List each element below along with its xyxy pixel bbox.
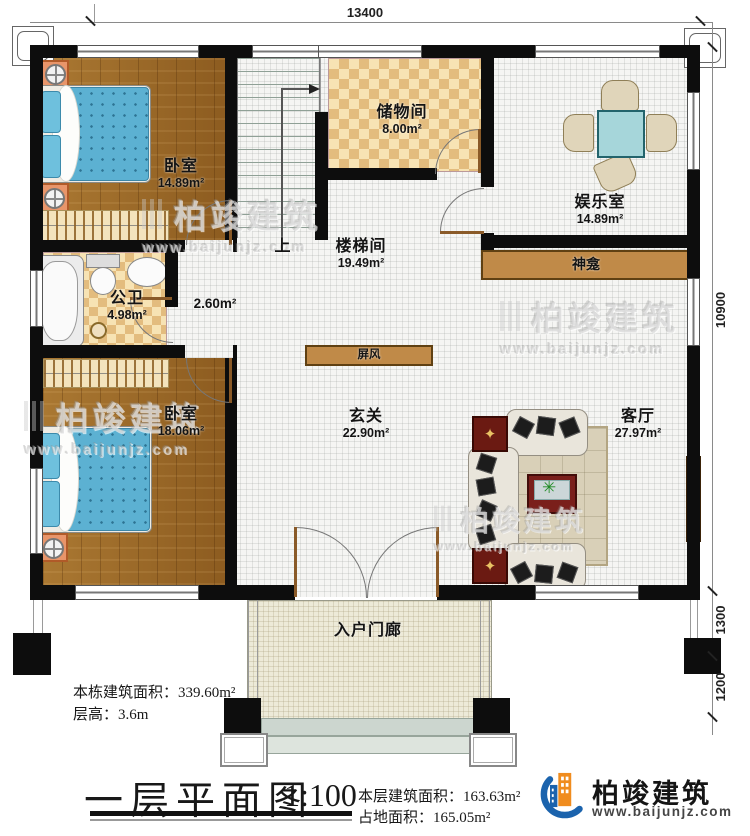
storage-label: 储物间 8.00m² xyxy=(352,104,452,136)
porch-step xyxy=(255,736,480,754)
dimension-top: 13400 xyxy=(320,5,410,20)
chair xyxy=(601,80,639,111)
shrine-shelf: 神龛 xyxy=(481,250,691,280)
dimension-right-total: 10900 xyxy=(713,280,727,340)
end-table: ✦ xyxy=(472,416,508,452)
entertainment-label: 娱乐室 14.89m² xyxy=(548,194,652,226)
window xyxy=(77,45,199,58)
screen-label: 屏风 xyxy=(358,349,381,362)
wall xyxy=(197,585,295,600)
wardrobe xyxy=(43,359,169,388)
building-total-area-note: 本栋建筑面积：339.60m² xyxy=(73,681,235,702)
french-door-leaf xyxy=(436,527,439,597)
wall xyxy=(328,168,437,180)
door-leaf xyxy=(229,358,232,403)
stair-rail-horizontal xyxy=(281,88,311,90)
footprint-area-note: 占地面积：165.05m² xyxy=(358,806,490,827)
window xyxy=(535,585,639,600)
staircase xyxy=(237,58,320,238)
wardrobe xyxy=(37,210,169,241)
living-label: 客厅 27.97m² xyxy=(592,408,684,440)
french-door-leaf xyxy=(294,527,297,597)
porch-pillar-base xyxy=(469,733,517,767)
wall xyxy=(481,58,494,187)
wall xyxy=(233,345,237,358)
toilet xyxy=(86,254,120,268)
screen-partition: 屏风 xyxy=(305,345,433,366)
sofa-top xyxy=(506,409,588,456)
wall xyxy=(233,240,237,252)
bed-1-pillow xyxy=(41,135,61,178)
stair-up-arrow xyxy=(309,84,320,94)
window xyxy=(535,45,660,58)
floor-drain xyxy=(90,322,107,339)
foyer-label: 玄关 22.90m² xyxy=(321,408,411,440)
bed-2-pillow xyxy=(40,481,60,527)
porch-pillar xyxy=(224,698,261,733)
dimension-line-top xyxy=(30,22,712,23)
porch-pillar xyxy=(473,698,510,733)
title-underline-thin xyxy=(90,819,352,821)
wall xyxy=(315,112,328,240)
brand-url: www.baijunjz.com xyxy=(592,804,733,819)
door-leaf xyxy=(440,231,484,234)
floor-plan-page: ✦ ✦ ✳ 神龛 屏风 xyxy=(0,0,750,836)
title-underline xyxy=(90,811,352,816)
wall xyxy=(637,585,700,600)
dimension-right-upper: 1300 xyxy=(713,590,727,650)
window xyxy=(30,468,43,554)
sofa-bottom xyxy=(504,543,586,590)
window xyxy=(30,270,43,327)
nightstand xyxy=(40,60,69,88)
stairwell-label: 楼梯间 19.49m² xyxy=(306,238,416,270)
wall xyxy=(437,585,535,600)
window xyxy=(687,278,700,346)
bedroom1-label: 卧室 14.89m² xyxy=(138,158,224,190)
floor-height-note: 层高：3.6m xyxy=(73,703,148,724)
coffee-table: ✳ xyxy=(527,474,577,514)
floor-area-note: 本层建筑面积：163.63m² xyxy=(358,785,520,806)
game-table xyxy=(597,110,645,158)
wall xyxy=(30,240,185,252)
drawing-scale: 1:100 xyxy=(284,777,357,814)
wall xyxy=(30,345,185,358)
sofa-left xyxy=(468,447,519,552)
chair xyxy=(646,114,677,152)
nightstand xyxy=(39,183,69,212)
wall xyxy=(481,235,700,248)
sink xyxy=(127,257,167,287)
hall-area-label: 2.60m² xyxy=(180,296,250,311)
stair-storage-divider xyxy=(320,58,321,112)
bathroom-label: 公卫 4.98m² xyxy=(82,290,172,322)
porch-step xyxy=(261,718,475,736)
bed-2-pillow xyxy=(40,433,60,479)
door-leaf xyxy=(229,200,232,245)
window xyxy=(75,585,199,600)
window xyxy=(318,45,422,58)
stair-rail-vertical xyxy=(281,88,283,238)
shrine-label: 神龛 xyxy=(572,257,600,273)
porch-label: 入户门廊 xyxy=(300,622,436,640)
end-table: ✦ xyxy=(472,548,508,584)
brand-logo-icon xyxy=(538,767,586,825)
window xyxy=(687,92,700,170)
porch-pillar-base xyxy=(220,733,268,767)
pillar xyxy=(13,633,51,675)
dimension-right-lower: 1200 xyxy=(713,657,727,717)
porch-floor xyxy=(247,600,492,720)
bedroom2-label: 卧室 18.06m² xyxy=(138,406,224,438)
wall xyxy=(30,585,75,600)
window xyxy=(252,45,320,58)
bed-1-pillow xyxy=(41,91,61,133)
door-leaf xyxy=(478,129,481,173)
stair-up-label: 上 xyxy=(268,238,298,256)
chair xyxy=(563,114,594,152)
drawing-title: 一层平面图 xyxy=(84,770,314,826)
